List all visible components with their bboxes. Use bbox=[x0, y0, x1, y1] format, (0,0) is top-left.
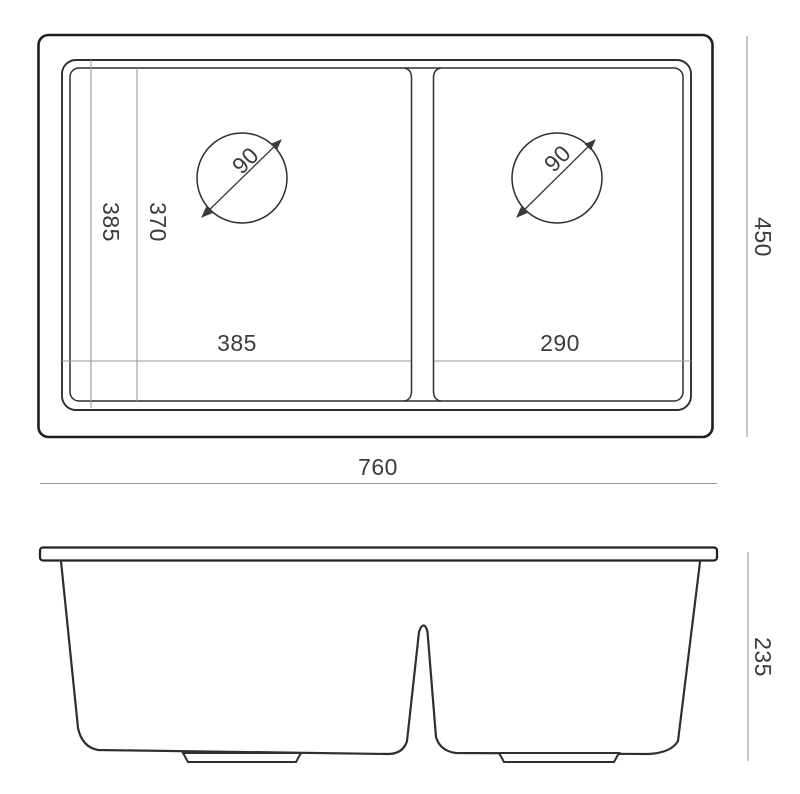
label-left-bowl-length-inner: 370 bbox=[145, 202, 171, 242]
front-right-foot-pad bbox=[499, 753, 619, 762]
bowl-divider-left-line bbox=[404, 68, 412, 401]
label-left-drain-diameter: 90 bbox=[227, 142, 264, 179]
label-overall-width: 760 bbox=[358, 454, 398, 480]
sink-technical-drawing: 385 370 385 290 90 90 450 760 235 bbox=[0, 0, 800, 794]
technical-drawing-page: 385 370 385 290 90 90 450 760 235 bbox=[0, 0, 800, 794]
top-view: 385 370 385 290 90 90 450 760 bbox=[39, 35, 777, 484]
label-left-bowl-width: 385 bbox=[217, 330, 257, 356]
label-overall-depth: 450 bbox=[750, 217, 776, 257]
front-view: 235 bbox=[40, 548, 776, 763]
label-right-drain-diameter: 90 bbox=[539, 140, 576, 177]
bowl-divider-right-line bbox=[434, 68, 442, 401]
front-left-foot-pad bbox=[183, 753, 301, 762]
front-body-outline bbox=[61, 561, 700, 754]
label-right-bowl-width: 290 bbox=[540, 330, 580, 356]
front-rim bbox=[40, 548, 717, 561]
label-left-bowl-length-outer: 385 bbox=[98, 202, 124, 242]
label-overall-height: 235 bbox=[750, 637, 776, 677]
sink-outer-outline bbox=[39, 35, 713, 437]
